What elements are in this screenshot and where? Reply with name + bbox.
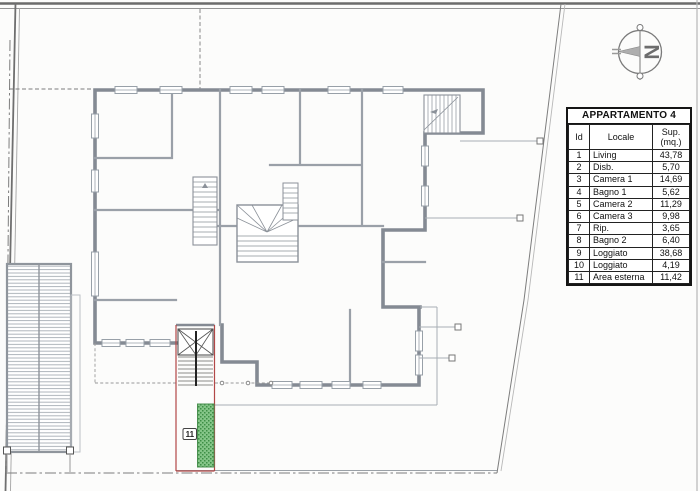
table-row: 1Living43,78 [569, 150, 690, 162]
table-row: 7Rip.3,65 [569, 223, 690, 235]
garden-area [198, 404, 215, 467]
table-row: 3Camera 114,69 [569, 174, 690, 186]
roof-hatch-block [4, 264, 81, 472]
col-header-sup: Sup.(mq.) [653, 125, 690, 150]
table-row: 4Bagno 15,62 [569, 186, 690, 198]
col-header-locale: Locale [590, 125, 653, 150]
external-staircase-topright [424, 95, 460, 133]
table-row: 11Area esterna11,42 [569, 271, 690, 283]
col-header-id: Id [569, 125, 590, 150]
area-11-number: 11 [186, 430, 195, 439]
side-staircase [193, 177, 217, 245]
north-arrow-icon [619, 47, 641, 57]
apartment-summary-table: APPARTAMENTO 4 Id Locale Sup.(mq.) 1Livi… [566, 107, 692, 286]
windows-bottom-left-wall [102, 340, 170, 347]
table-row: 10Loggiato4,19 [569, 259, 690, 271]
table-row: 8Bagno 26,40 [569, 235, 690, 247]
table-row: 2Disb.5,70 [569, 162, 690, 174]
table-row: 6Camera 39,98 [569, 210, 690, 222]
table-header-row: Id Locale Sup.(mq.) [569, 125, 690, 150]
table-row: 5Camera 211,29 [569, 198, 690, 210]
compass-north-letter: N [640, 44, 663, 59]
upper-interior-stair [283, 183, 298, 220]
scanned-plan-page: 11 N APPARTAMENTO 4 Id Locale Sup.(mq.) … [0, 0, 700, 491]
area-11-label: 11 [183, 429, 197, 440]
table-title: APPARTAMENTO 4 [568, 109, 690, 124]
terrace-rails [95, 138, 543, 471]
table-row: 9Loggiato38,68 [569, 247, 690, 259]
north-compass: N [612, 24, 663, 80]
